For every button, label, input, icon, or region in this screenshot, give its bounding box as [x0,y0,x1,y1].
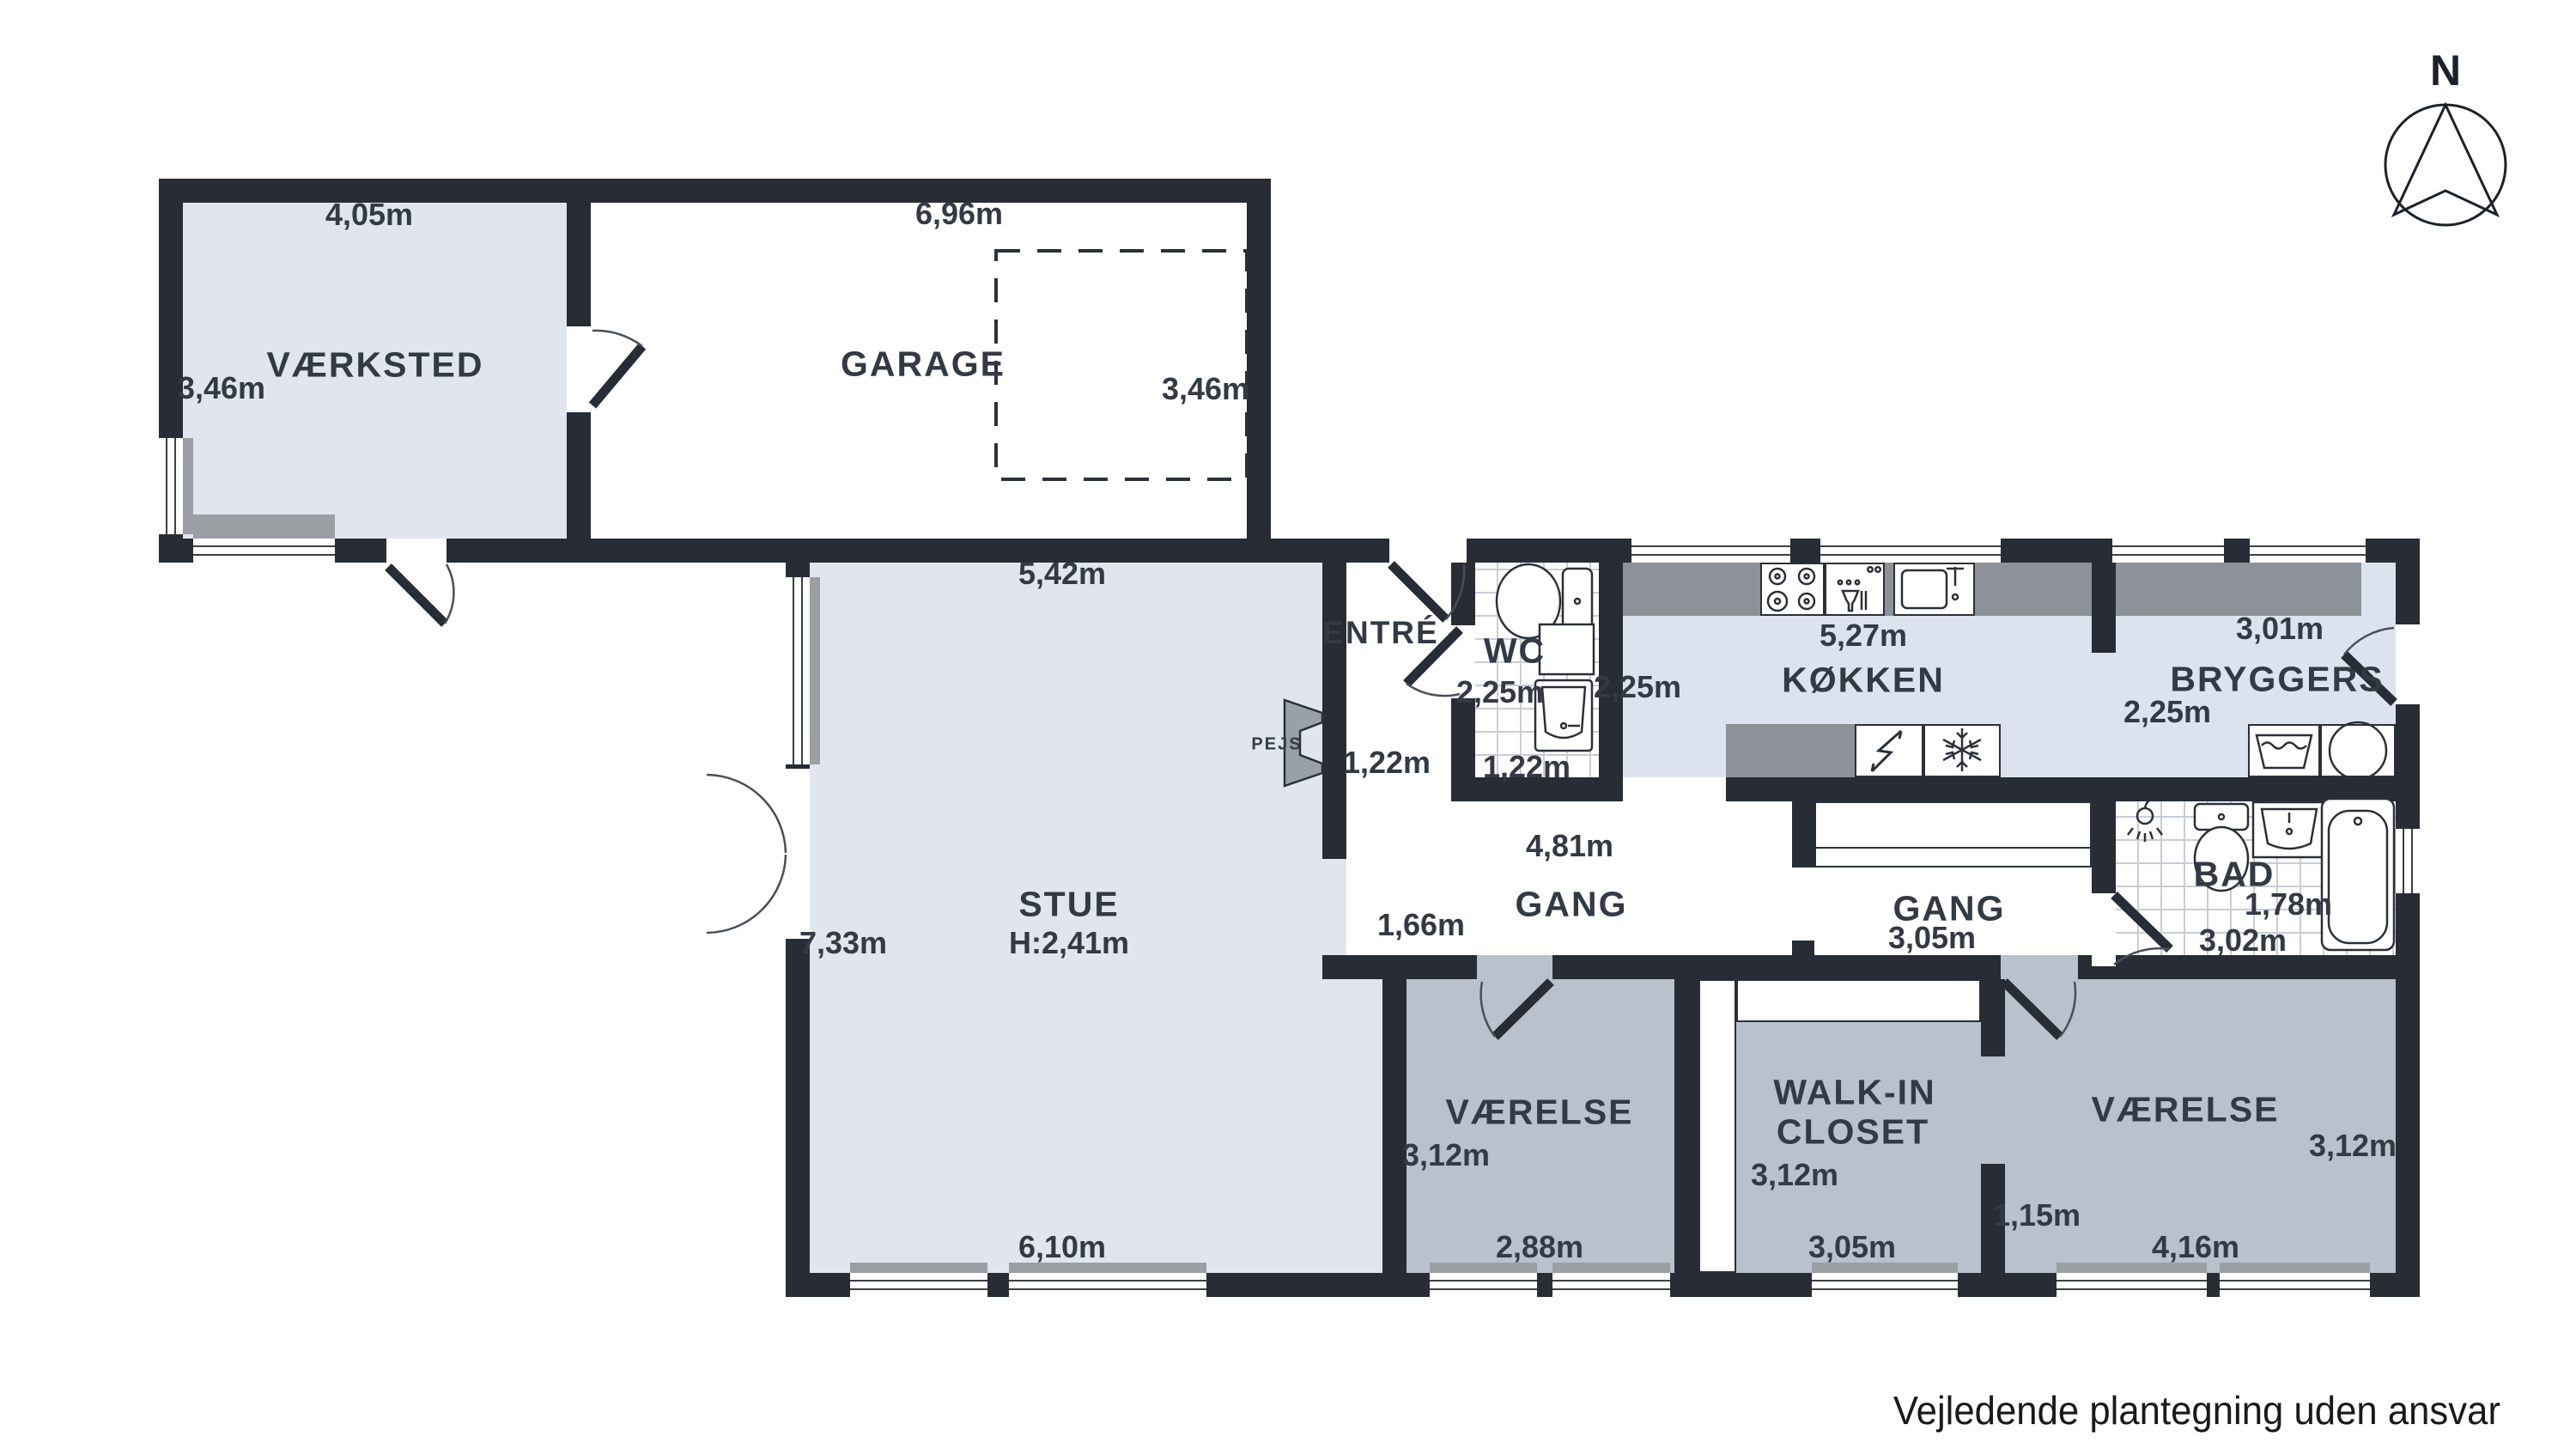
room-label-stue: STUE [1018,885,1119,925]
door-entre-front [1391,564,1464,619]
bad-sink-icon [2253,802,2325,857]
room-label-koekken: KØKKEN [1782,661,1945,701]
laundry-tub-icon [2257,735,2312,768]
dim-wc-width: 1,22m [1483,749,1571,785]
room-label-vaerelse2: VÆRELSE [2091,1090,2279,1130]
dim-vaerksted-depth: 3,46m [178,370,265,406]
lightning-icon [1872,731,1901,771]
disclaimer-text: Vejledende plantegning uden ansvar [1893,1387,2500,1434]
door-bad [2114,895,2170,965]
room-label-vaerelse1: VÆRELSE [1445,1093,1633,1133]
dim-bryggers-depth: 2,25m [2123,694,2211,730]
fireplace-label: PEJS [1251,735,1302,755]
door-vaerelse1 [1481,982,1551,1037]
dim-garage-depth: 3,46m [1162,371,1249,407]
snowflake-icon [1943,728,1981,771]
door-vaerksted-garage [592,331,642,405]
dim-walkin-opening: 1,15m [1993,1197,2081,1233]
dim-stue-width-bottom: 6,10m [1018,1229,1106,1265]
dim-gang2-width: 3,05m [1888,920,1976,956]
bathtub-icon [2322,799,2394,950]
shower-head-icon [2128,800,2162,842]
dim-vaerelse2-depth: 3,12m [2309,1128,2397,1164]
room-label-walkin-1: WALK-IN [1773,1073,1935,1113]
dim-garage-width: 6,96m [915,196,1003,232]
dim-bad-depth: 1,78m [2245,886,2332,922]
stove-icon [1768,569,1814,611]
room-label-vaerksted: VÆRKSTED [267,345,484,386]
compass-north-label: N [2430,46,2461,95]
door-garden-double [707,775,786,933]
dim-bryggers-width: 3,01m [2236,611,2324,647]
washing-machine-icon [2330,722,2386,779]
dim-vaerelse1-depth: 3,12m [1402,1137,1490,1173]
dim-bad-width: 3,02m [2199,922,2287,959]
dim-entre-width: 1,22m [1343,745,1431,781]
room-label-wc: WC [1484,631,1546,672]
dim-koekken-width: 5,27m [1820,618,1907,654]
dishwasher-icon [1838,567,1880,611]
garage-door-dashed-outline [996,251,1247,479]
room-label-gang1: GANG [1516,885,1628,925]
door-vaerksted-exterior [388,564,453,624]
wc-cabinet [1540,624,1594,674]
dim-vaerelse2-width: 4,16m [2152,1229,2239,1265]
dim-stue-depth: 7,33m [799,925,887,961]
sink-icon [1902,567,1964,608]
room-label-entre: ENTRÉ [1322,615,1438,651]
dim-vaerelse1-width: 2,88m [1496,1229,1583,1265]
floor-plan: 4,05m VÆRKSTED 3,46m 6,96m GARAGE 3,46m … [0,0,2576,1449]
dim-walkin-width: 3,05m [1808,1229,1896,1265]
dim-vaerksted-width: 4,05m [325,197,413,233]
dim-walkin-depth: 3,12m [1751,1157,1838,1193]
room-label-garage: GARAGE [841,344,1005,385]
dim-gang1-width: 4,81m [1526,828,1613,864]
dim-wc-depth: 2,25m [1456,674,1544,710]
compass-icon [2385,105,2506,225]
dim-stue-width-top: 5,42m [1018,556,1106,592]
dim-koekken-depth: 2,25m [1594,669,1681,705]
dim-gang1-opening: 1,66m [1377,907,1465,943]
door-vaerelse2 [2004,982,2075,1037]
room-label-walkin-2: CLOSET [1777,1112,1929,1153]
dim-stue-ceiling: H:2,41m [1009,925,1129,961]
